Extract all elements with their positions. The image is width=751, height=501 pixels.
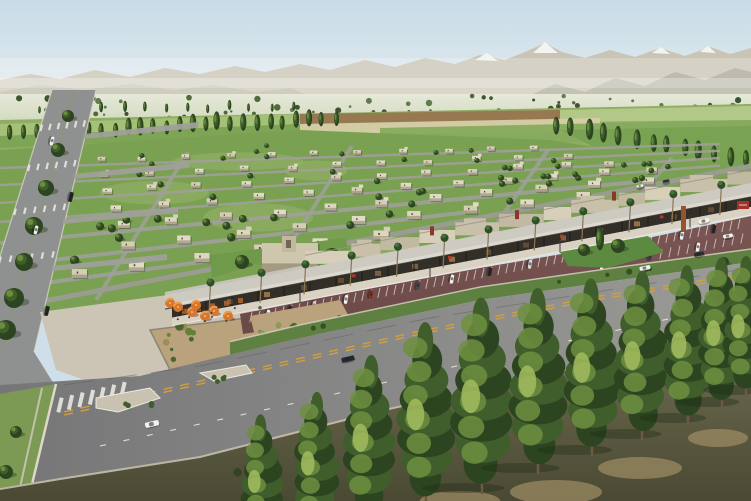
house bbox=[191, 182, 202, 189]
house bbox=[325, 203, 338, 211]
house bbox=[604, 161, 615, 168]
house bbox=[332, 162, 342, 168]
monument-sign bbox=[737, 201, 749, 209]
house bbox=[468, 169, 479, 176]
house bbox=[421, 170, 432, 177]
poplar-tree bbox=[206, 104, 209, 113]
house bbox=[72, 269, 88, 279]
house bbox=[182, 154, 191, 160]
poplar-tree bbox=[7, 125, 12, 140]
house bbox=[111, 205, 123, 212]
house bbox=[445, 149, 454, 155]
house bbox=[220, 212, 233, 220]
poplar-tree bbox=[280, 115, 285, 129]
house bbox=[487, 146, 496, 152]
house bbox=[177, 235, 192, 244]
poplar-tree bbox=[319, 112, 324, 126]
poplar-tree bbox=[143, 101, 147, 111]
house bbox=[535, 185, 548, 193]
house bbox=[562, 162, 573, 169]
roof-sign bbox=[515, 210, 519, 219]
house bbox=[599, 169, 611, 176]
poplar-tree bbox=[38, 106, 41, 113]
house bbox=[310, 151, 319, 157]
poplar-tree bbox=[186, 103, 189, 112]
poplar-tree bbox=[728, 147, 735, 166]
poplar-tree bbox=[203, 117, 208, 131]
poplar-tree bbox=[663, 135, 669, 153]
house bbox=[303, 190, 315, 197]
house bbox=[240, 166, 250, 172]
poplar-tree bbox=[600, 123, 607, 143]
poplar-tree bbox=[21, 125, 26, 139]
poplar-tree bbox=[334, 112, 339, 126]
house bbox=[520, 199, 535, 208]
house bbox=[194, 253, 210, 263]
poplar-tree bbox=[240, 113, 246, 131]
house bbox=[353, 150, 362, 156]
house bbox=[480, 189, 493, 197]
poplar-tree bbox=[651, 134, 657, 152]
poplar-tree bbox=[213, 111, 220, 129]
poplar-tree bbox=[292, 102, 295, 111]
poplar-tree bbox=[553, 117, 559, 135]
poplar-tree bbox=[123, 101, 127, 112]
house bbox=[98, 157, 107, 163]
poplar-tree bbox=[586, 119, 593, 140]
poplar-tree bbox=[268, 113, 274, 129]
poplar-tree bbox=[165, 103, 168, 112]
poplar-tree bbox=[596, 227, 604, 250]
poplar-tree bbox=[293, 111, 299, 128]
house bbox=[293, 223, 308, 232]
house bbox=[530, 146, 539, 152]
poplar-tree bbox=[227, 116, 232, 131]
poplar-tree bbox=[306, 109, 312, 126]
roof-sign bbox=[430, 226, 434, 235]
house bbox=[195, 169, 205, 175]
aerial-community-rendering bbox=[0, 0, 751, 501]
poplar-tree bbox=[271, 104, 274, 112]
poplar-tree bbox=[567, 117, 574, 136]
house bbox=[121, 241, 136, 250]
poplar-tree bbox=[711, 146, 717, 163]
house bbox=[254, 193, 266, 200]
poplar-tree bbox=[615, 126, 622, 145]
house bbox=[407, 211, 422, 220]
house bbox=[401, 183, 413, 190]
rendered-scene bbox=[0, 0, 751, 501]
entry-feature bbox=[681, 206, 686, 232]
house bbox=[376, 160, 386, 166]
house bbox=[564, 154, 574, 160]
house bbox=[453, 180, 465, 187]
house bbox=[284, 177, 295, 184]
roof-sign bbox=[612, 192, 616, 201]
house bbox=[242, 181, 253, 188]
house bbox=[430, 194, 443, 202]
house bbox=[102, 188, 113, 195]
poplar-tree bbox=[228, 100, 232, 110]
poplar-tree bbox=[99, 101, 103, 112]
poplar-tree bbox=[255, 115, 261, 132]
poplar-tree bbox=[247, 103, 250, 111]
house bbox=[423, 160, 433, 166]
house bbox=[352, 216, 367, 225]
house bbox=[514, 155, 524, 161]
